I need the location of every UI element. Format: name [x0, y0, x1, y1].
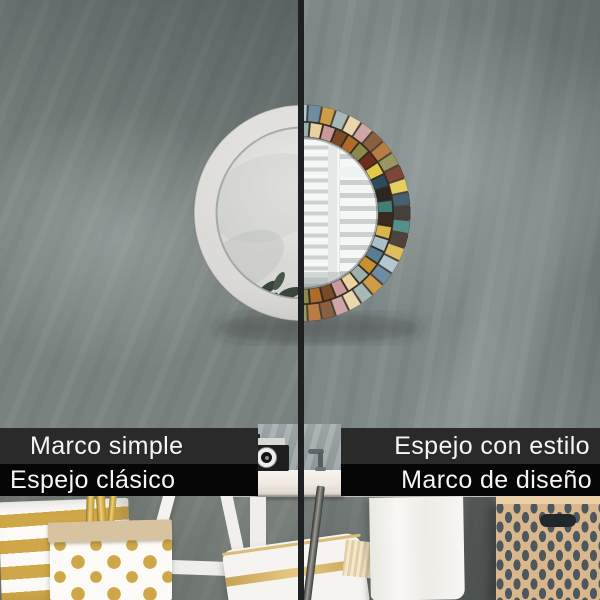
camera-lens-core [265, 456, 269, 460]
label-bar-marco-simple: Marco simple [0, 428, 258, 464]
label-text-right-bottom: Marco de diseño [401, 466, 592, 495]
label-bar-espejo-con-estilo: Espejo con estilo [341, 428, 600, 464]
patterned-storage-box [496, 502, 600, 600]
label-bar-marco-de-diseno: Marco de diseño [341, 464, 600, 496]
label-bar-espejo-clasico: Espejo clásico [0, 464, 258, 496]
polka-dot-paper-bag [50, 534, 172, 600]
faucet-base [315, 467, 326, 471]
label-text-right-top: Espejo con estilo [394, 432, 590, 461]
storage-box-handle [540, 514, 576, 527]
faucet [308, 449, 332, 472]
window-mullion [328, 134, 339, 290]
easel-post [250, 497, 266, 547]
label-block-left: Marco simple Espejo clásico [0, 428, 258, 496]
label-block-right: Espejo con estilo Marco de diseño [341, 428, 600, 496]
paper-bag-fold [48, 519, 172, 542]
label-text-left-top: Marco simple [30, 432, 183, 461]
label-text-left-bottom: Espejo clásico [10, 466, 175, 495]
storage-box-top [496, 495, 600, 504]
mirror-comparison-photo: Marco simple Espejo clásico Espejo con e… [0, 0, 600, 600]
white-towel [369, 496, 465, 600]
camera-lens [256, 447, 277, 468]
faucet-neck [318, 452, 323, 468]
center-divider-line [298, 0, 304, 600]
